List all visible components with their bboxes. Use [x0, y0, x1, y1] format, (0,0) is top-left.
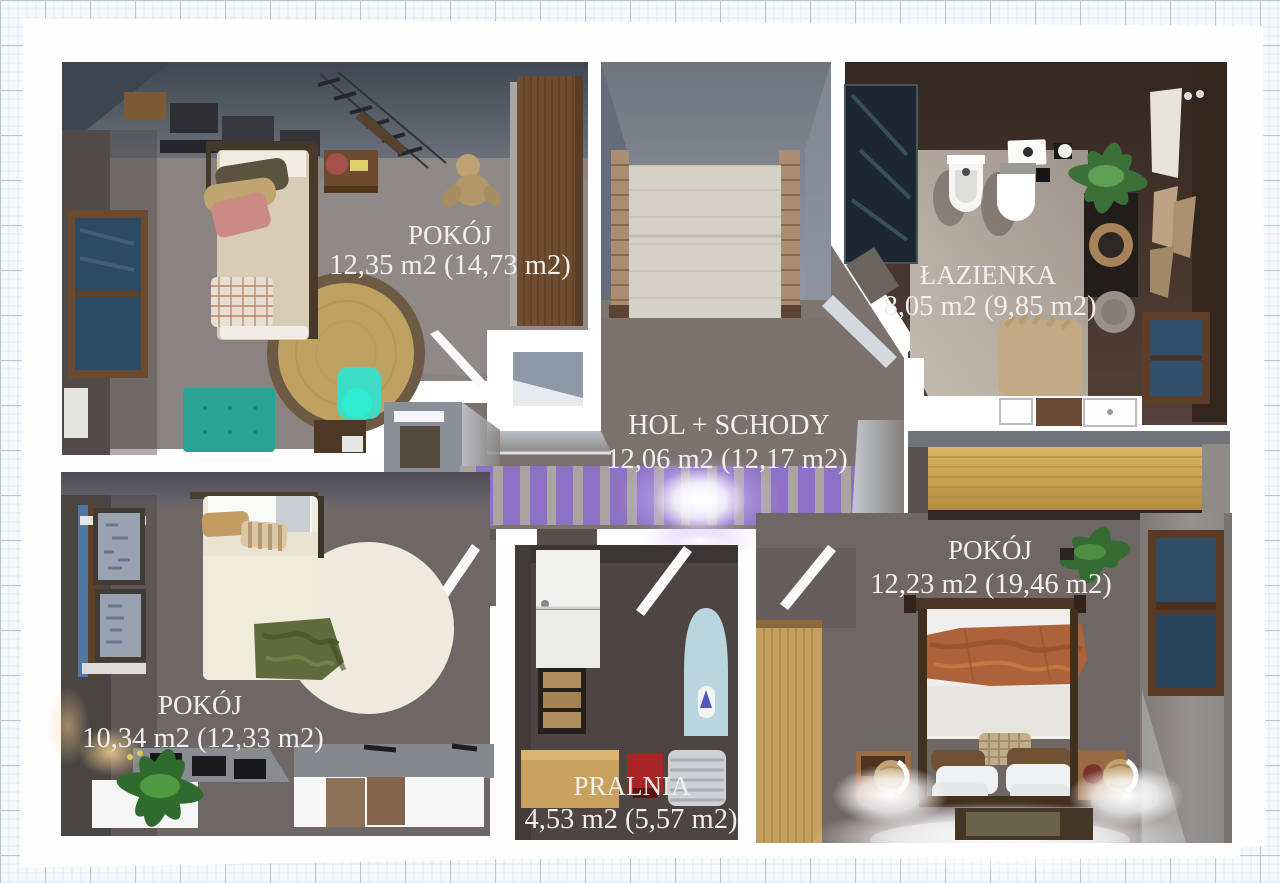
svg-text:POKÓJ: POKÓJ — [408, 220, 492, 250]
svg-text:12,35 m2 (14,73 m2): 12,35 m2 (14,73 m2) — [329, 250, 570, 281]
svg-text:POKÓJ: POKÓJ — [948, 535, 1032, 565]
svg-text:POKÓJ: POKÓJ — [158, 690, 242, 720]
svg-text:HOL + SCHODY: HOL + SCHODY — [628, 410, 829, 441]
svg-text:PRALNIA: PRALNIA — [573, 771, 691, 801]
svg-text:4,53 m2 (5,57 m2): 4,53 m2 (5,57 m2) — [525, 804, 738, 835]
svg-text:12,06 m2 (12,17 m2): 12,06 m2 (12,17 m2) — [606, 444, 847, 475]
svg-text:ŁAZIENKA: ŁAZIENKA — [920, 260, 1057, 290]
svg-text:8,05 m2 (9,85 m2): 8,05 m2 (9,85 m2) — [884, 291, 1097, 322]
svg-text:10,34 m2 (12,33 m2): 10,34 m2 (12,33 m2) — [82, 723, 323, 754]
svg-text:12,23 m2 (19,46 m2): 12,23 m2 (19,46 m2) — [870, 569, 1111, 600]
